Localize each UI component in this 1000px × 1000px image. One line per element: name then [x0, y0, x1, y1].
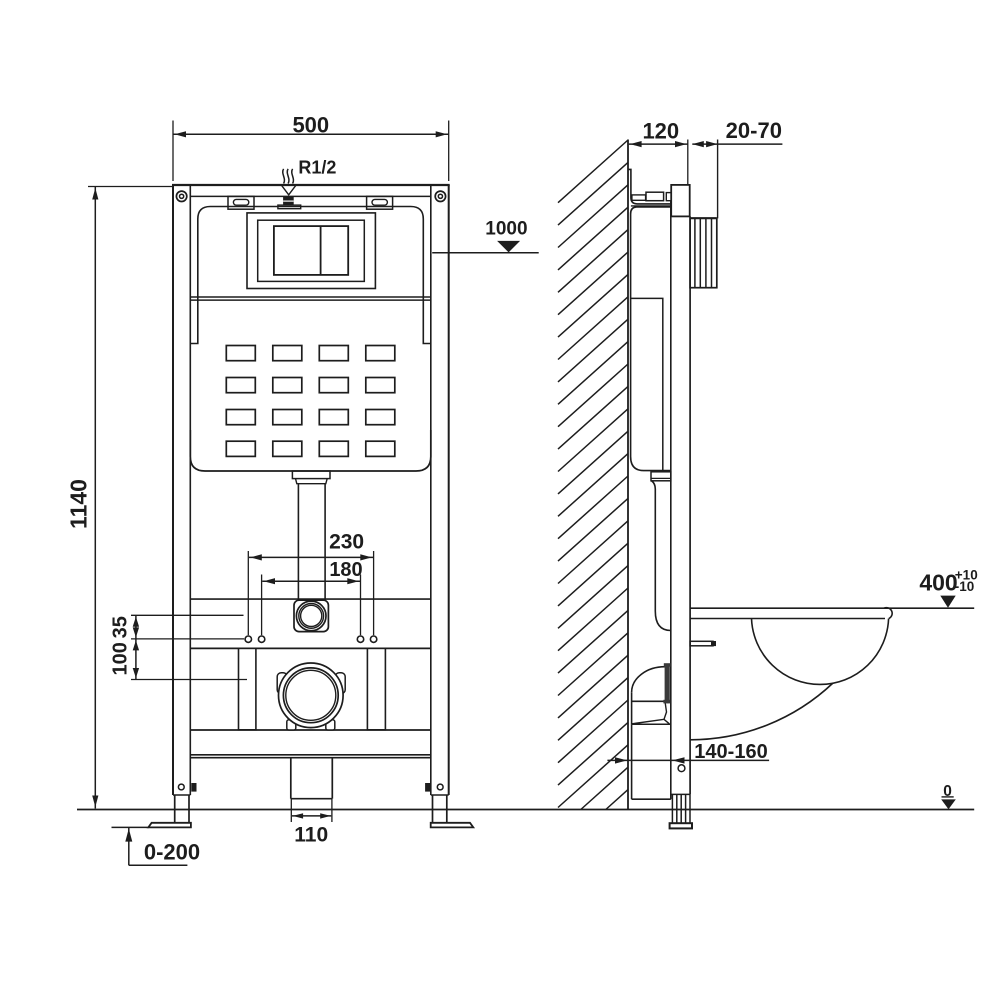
svg-text:100: 100: [110, 642, 132, 675]
svg-text:20-70: 20-70: [726, 118, 782, 143]
svg-text:140-160: 140-160: [694, 741, 767, 763]
svg-text:500: 500: [292, 113, 329, 138]
svg-text:1140: 1140: [65, 479, 91, 529]
svg-text:1000: 1000: [485, 219, 527, 240]
svg-text:R1/2: R1/2: [298, 157, 336, 177]
svg-text:120: 120: [642, 119, 679, 144]
svg-text:110: 110: [294, 823, 328, 846]
svg-text:230: 230: [329, 531, 364, 554]
svg-text:35: 35: [110, 616, 132, 638]
svg-text:180: 180: [329, 559, 362, 581]
svg-text:0-200: 0-200: [144, 839, 200, 864]
svg-text:400: 400: [919, 570, 957, 596]
svg-text:-10: -10: [955, 579, 975, 594]
